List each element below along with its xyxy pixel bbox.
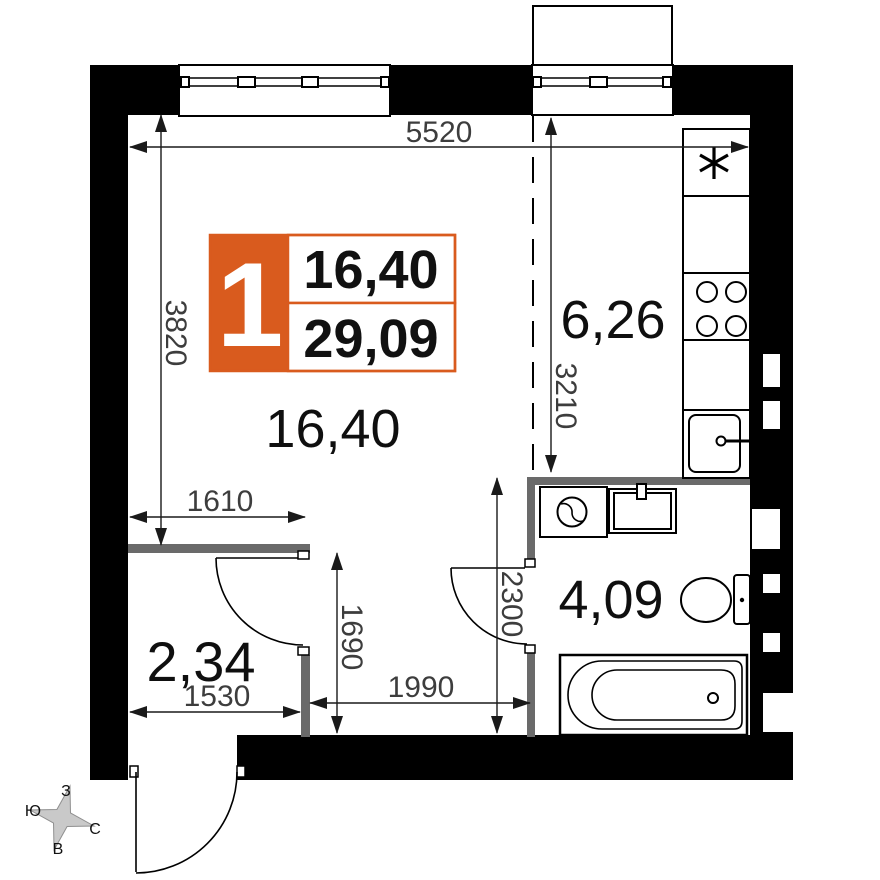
window-mullion <box>590 77 607 87</box>
window-mullion <box>181 77 189 87</box>
kitchen-fixtures <box>683 129 750 478</box>
floor-plan-svg: 5520 3820 3210 1610 1530 <box>0 0 880 880</box>
niche <box>763 633 780 652</box>
compass: З Ю С В <box>22 778 102 858</box>
window-mullion <box>663 77 671 87</box>
window-mullion <box>381 77 389 87</box>
window-left <box>179 65 390 116</box>
bathtub <box>560 655 747 735</box>
door-jamb <box>298 551 309 559</box>
door-jamb <box>237 766 245 777</box>
dim-label-corridor: 1990 <box>388 671 455 704</box>
living-room-area-label: 16,40 <box>265 399 400 459</box>
niche <box>763 574 780 593</box>
dim-label-left: 3820 <box>159 300 192 367</box>
burner <box>697 282 717 302</box>
entrance-door-swing-arc <box>136 772 237 873</box>
burner <box>726 282 746 302</box>
dim-left: 3820 <box>155 114 192 546</box>
dim-bath-height: 2300 <box>491 477 528 734</box>
bath-sink-tap-icon <box>637 484 646 499</box>
dim-hall-width: 1610 <box>129 485 306 523</box>
dim-label-bath-height: 2300 <box>495 571 528 638</box>
door-jamb <box>298 647 309 655</box>
toilet-bowl <box>681 578 731 622</box>
hallway-stub-partition <box>301 655 310 737</box>
compass-left-label: Ю <box>25 803 41 820</box>
niche <box>763 354 780 387</box>
window-right <box>532 65 673 115</box>
burner <box>697 316 717 336</box>
balcony-box <box>533 6 672 65</box>
top-wall-middle-segment <box>390 65 532 115</box>
niche <box>763 401 780 429</box>
kitchen-counter <box>683 196 750 273</box>
bathtub-drain-icon <box>708 693 718 703</box>
window-mullion <box>302 77 318 87</box>
burner <box>726 316 746 336</box>
kitchen-area-label: 6,26 <box>560 290 665 350</box>
bathroom-area-label: 4,09 <box>558 570 663 630</box>
niche <box>752 509 780 549</box>
unit-living-area: 16,40 <box>303 240 438 300</box>
window-mullion <box>238 77 255 87</box>
dim-label-kitchen-zone: 3210 <box>549 363 582 430</box>
dim-label-hall-width: 1610 <box>187 485 254 518</box>
hallway-partition <box>128 544 310 553</box>
window-mullion <box>533 77 541 87</box>
hallway-area-label: 2,34 <box>147 630 256 693</box>
door-jamb <box>525 645 535 653</box>
compass-right-label: С <box>89 821 101 838</box>
kitchen-counter <box>683 340 750 410</box>
kitchen-sink-basin <box>689 415 740 472</box>
bathroom-left-partition-upper <box>527 477 535 562</box>
unit-number: 1 <box>217 238 284 372</box>
floor-plan-canvas: 5520 3820 3210 1610 1530 <box>0 0 880 880</box>
door-jamb <box>525 559 535 567</box>
dim-hall-height: 1690 <box>331 552 368 734</box>
unit-total-area: 29,09 <box>303 309 438 369</box>
dim-label-top: 5520 <box>406 116 473 149</box>
bathroom-left-partition-lower <box>527 652 535 737</box>
toilet-button-icon <box>740 598 744 602</box>
niche <box>763 693 793 732</box>
unit-badge: 1 16,40 29,09 <box>210 235 455 372</box>
dim-top: 5520 <box>129 116 749 153</box>
bottom-wall <box>237 735 793 780</box>
faucet-icon <box>717 437 726 446</box>
dim-corridor: 1990 <box>309 671 531 709</box>
dim-label-hall-height: 1690 <box>335 604 368 671</box>
compass-bottom-label: В <box>53 841 64 858</box>
compass-top-label: З <box>61 783 71 800</box>
left-wall <box>90 65 128 780</box>
